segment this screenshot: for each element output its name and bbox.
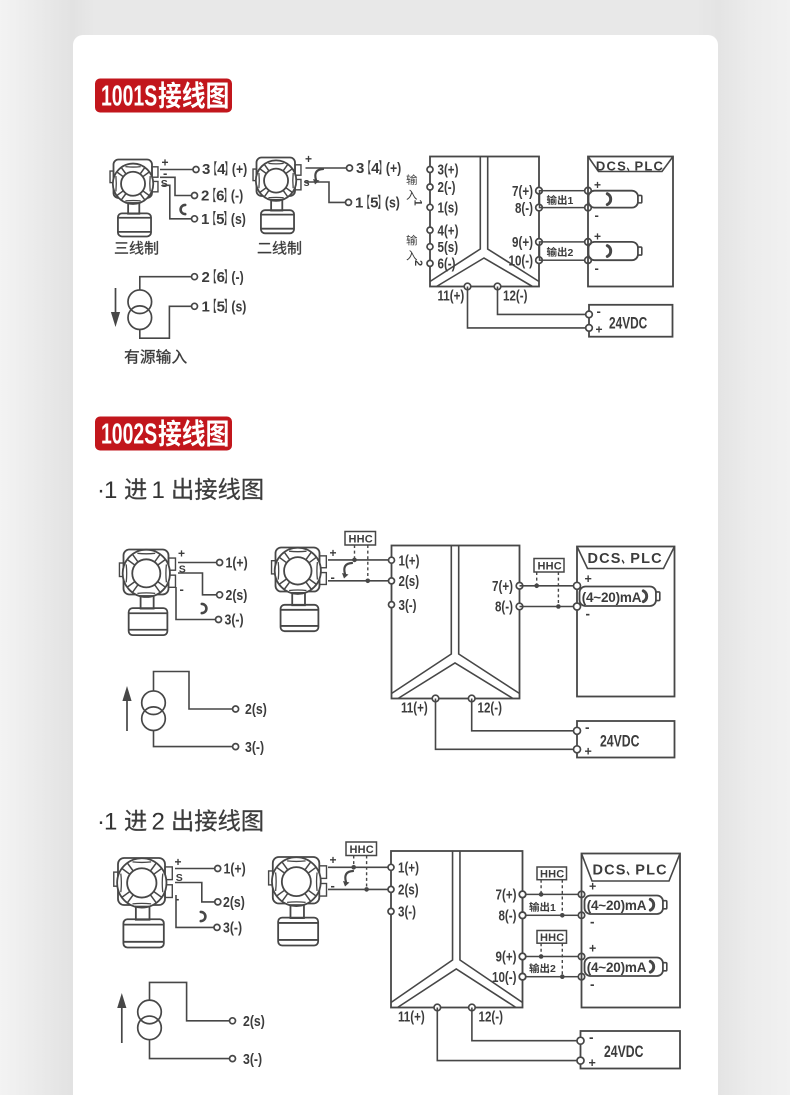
svg-text:+: + — [589, 942, 596, 956]
svg-text:1(+): 1(+) — [226, 555, 248, 571]
svg-text:(4~20)mA: (4~20)mA — [587, 960, 647, 975]
svg-text:HHC: HHC — [538, 561, 562, 573]
svg-text:(4~20)mA: (4~20)mA — [587, 898, 647, 913]
svg-text:1: 1 — [104, 477, 117, 504]
svg-text:-: - — [585, 720, 590, 735]
svg-text:1: 1 — [152, 477, 165, 504]
svg-text:2: 2 — [568, 247, 574, 259]
svg-text:5: 5 — [216, 211, 224, 228]
svg-text:s: s — [304, 177, 310, 189]
svg-text:9(+): 9(+) — [496, 948, 517, 965]
svg-text:24VDC: 24VDC — [604, 1043, 644, 1061]
svg-text:8(-): 8(-) — [515, 200, 533, 217]
svg-text:(+): (+) — [386, 160, 401, 176]
svg-text:2: 2 — [550, 963, 556, 975]
svg-text:1(s): 1(s) — [438, 199, 459, 216]
svg-text:4(+): 4(+) — [438, 222, 459, 239]
svg-text:4: 4 — [371, 160, 380, 177]
svg-text:9(+): 9(+) — [512, 234, 533, 251]
svg-text:11(+): 11(+) — [398, 1008, 425, 1025]
svg-text:6: 6 — [216, 188, 224, 205]
svg-text:2(s): 2(s) — [245, 701, 267, 717]
svg-text:1001S: 1001S — [101, 81, 157, 113]
svg-text:(s): (s) — [385, 194, 400, 210]
svg-text:2(s): 2(s) — [399, 573, 420, 590]
svg-text:(s): (s) — [231, 298, 246, 314]
svg-text:12(-): 12(-) — [479, 1008, 503, 1025]
svg-text:1: 1 — [355, 195, 363, 212]
svg-text:3(+): 3(+) — [438, 161, 459, 178]
svg-text:5(s): 5(s) — [438, 239, 459, 256]
svg-text:7(+): 7(+) — [496, 886, 517, 903]
svg-text:3(-): 3(-) — [223, 919, 242, 935]
svg-text:-: - — [331, 878, 335, 893]
svg-text:3(-): 3(-) — [225, 612, 244, 628]
svg-text:-: - — [331, 570, 335, 585]
svg-text:-: - — [595, 208, 599, 223]
svg-text:1(+): 1(+) — [399, 552, 420, 569]
svg-text:2(s): 2(s) — [226, 587, 248, 603]
svg-text:11(+): 11(+) — [401, 699, 428, 716]
svg-text:(+): (+) — [232, 161, 247, 177]
svg-text:5: 5 — [370, 195, 378, 212]
svg-text:+: + — [175, 855, 182, 869]
svg-text:+: + — [585, 572, 592, 586]
svg-text:+: + — [330, 546, 337, 560]
svg-text:+: + — [305, 152, 312, 166]
svg-text:5: 5 — [217, 299, 225, 316]
svg-text:2(s): 2(s) — [223, 894, 245, 910]
svg-text:2(s): 2(s) — [243, 1013, 265, 1029]
svg-text:HHC: HHC — [540, 869, 564, 881]
svg-text:PLC: PLC — [635, 863, 668, 879]
svg-text:8(-): 8(-) — [498, 907, 516, 924]
svg-text:-: - — [180, 582, 184, 597]
svg-text:7(+): 7(+) — [492, 578, 513, 595]
svg-text:+: + — [589, 1056, 596, 1070]
svg-text:(-): (-) — [231, 269, 243, 285]
svg-text:7(+): 7(+) — [512, 183, 533, 200]
svg-text:3: 3 — [202, 161, 210, 178]
svg-text:2: 2 — [152, 809, 165, 836]
svg-text:3(-): 3(-) — [243, 1051, 262, 1067]
svg-text:HHC: HHC — [350, 844, 374, 856]
svg-text:HHC: HHC — [349, 534, 373, 546]
svg-text:(4~20)mA: (4~20)mA — [582, 590, 642, 605]
svg-text:11(+): 11(+) — [438, 287, 465, 304]
svg-text:+: + — [596, 323, 603, 337]
svg-text:3: 3 — [356, 160, 364, 177]
svg-text:(-): (-) — [231, 188, 243, 204]
svg-text:12(-): 12(-) — [503, 287, 527, 304]
svg-text:1: 1 — [550, 902, 556, 914]
svg-text:DCS: DCS — [596, 159, 627, 174]
svg-text:6(-): 6(-) — [438, 255, 456, 272]
svg-text:3(-): 3(-) — [398, 903, 416, 920]
svg-text:PLC: PLC — [630, 551, 663, 567]
svg-text:10(-): 10(-) — [509, 252, 533, 269]
svg-text:-: - — [595, 261, 599, 276]
svg-text:+: + — [330, 853, 337, 867]
svg-text:-: - — [590, 977, 595, 992]
svg-text:24VDC: 24VDC — [609, 315, 647, 333]
svg-text:S: S — [161, 178, 168, 190]
svg-text:-: - — [590, 915, 595, 930]
svg-text:2(s): 2(s) — [398, 881, 419, 898]
svg-text:8(-): 8(-) — [495, 598, 513, 615]
svg-text:DCS: DCS — [592, 863, 626, 879]
svg-text:2: 2 — [412, 260, 424, 266]
svg-text:4: 4 — [217, 161, 226, 178]
svg-text:-: - — [589, 1030, 594, 1045]
svg-text:1: 1 — [104, 809, 117, 836]
svg-text:HHC: HHC — [540, 932, 564, 944]
svg-text:+: + — [589, 880, 596, 894]
svg-text:1: 1 — [412, 200, 424, 206]
svg-text:+: + — [585, 745, 592, 759]
svg-text:-: - — [586, 607, 591, 622]
svg-text:1(+): 1(+) — [224, 861, 246, 877]
svg-text:1002S: 1002S — [101, 419, 157, 451]
svg-text:DCS: DCS — [587, 551, 621, 567]
svg-text:-: - — [597, 304, 601, 319]
svg-text:1: 1 — [202, 299, 210, 316]
svg-text:3(-): 3(-) — [245, 739, 264, 755]
svg-text:2: 2 — [201, 188, 209, 205]
svg-text:3(-): 3(-) — [399, 597, 417, 614]
svg-text:1(+): 1(+) — [398, 859, 419, 876]
svg-text:+: + — [178, 547, 185, 561]
svg-text:1: 1 — [568, 195, 574, 207]
svg-text:10(-): 10(-) — [492, 969, 516, 986]
svg-text:(s): (s) — [231, 211, 246, 227]
svg-text:PLC: PLC — [635, 159, 665, 174]
svg-text:1: 1 — [201, 211, 209, 228]
svg-text:24VDC: 24VDC — [600, 733, 640, 751]
svg-text:12(-): 12(-) — [478, 699, 502, 716]
svg-text:6: 6 — [217, 269, 225, 286]
svg-text:2(-): 2(-) — [438, 179, 456, 196]
svg-text:2: 2 — [202, 269, 210, 286]
